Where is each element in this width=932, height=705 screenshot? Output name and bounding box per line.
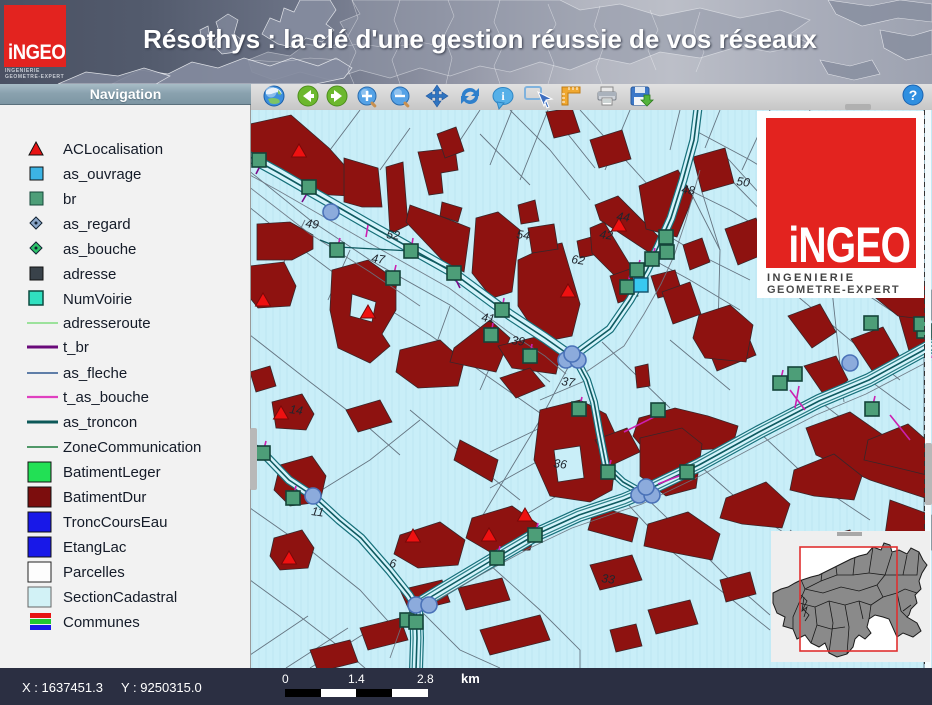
svg-text:NumVoirie: NumVoirie xyxy=(63,291,132,308)
svg-text:48: 48 xyxy=(681,182,696,198)
svg-text:SectionCadastral: SectionCadastral xyxy=(63,589,177,606)
svg-text:41: 41 xyxy=(481,310,496,326)
svg-text:BatimentLeger: BatimentLeger xyxy=(63,464,161,481)
svg-text:39: 39 xyxy=(511,333,526,349)
svg-text:t_as_bouche: t_as_bouche xyxy=(63,389,149,406)
svg-text:52: 52 xyxy=(386,227,401,243)
svg-text:TroncCoursEau: TroncCoursEau xyxy=(63,514,168,531)
svg-text:as_fleche: as_fleche xyxy=(63,365,127,382)
svg-text:44: 44 xyxy=(616,209,631,225)
svg-text:as_bouche: as_bouche xyxy=(63,241,136,258)
svg-text:54: 54 xyxy=(516,227,531,243)
svg-text:33: 33 xyxy=(601,571,616,587)
svg-text:?: ? xyxy=(909,87,918,103)
svg-text:Parcelles: Parcelles xyxy=(63,564,125,581)
svg-text:as_troncon: as_troncon xyxy=(63,414,137,431)
svg-text:42: 42 xyxy=(599,227,614,243)
svg-text:EtangLac: EtangLac xyxy=(63,539,127,556)
svg-text:11: 11 xyxy=(311,504,325,520)
svg-text:14: 14 xyxy=(289,402,304,418)
svg-text:br: br xyxy=(63,191,76,208)
svg-text:adresse: adresse xyxy=(63,266,116,283)
svg-text:Communes: Communes xyxy=(63,614,140,631)
svg-text:ZoneCommunication: ZoneCommunication xyxy=(63,439,201,456)
svg-text:as_ouvrage: as_ouvrage xyxy=(63,166,141,183)
svg-text:ACLocalisation: ACLocalisation xyxy=(63,141,163,158)
svg-text:as_regard: as_regard xyxy=(63,216,131,233)
svg-text:62: 62 xyxy=(571,252,586,268)
svg-text:t_br: t_br xyxy=(63,339,89,356)
svg-text:36: 36 xyxy=(553,456,568,472)
svg-text:BatimentDur: BatimentDur xyxy=(63,489,146,506)
svg-text:adresseroute: adresseroute xyxy=(63,315,151,332)
svg-text:49: 49 xyxy=(305,216,320,232)
svg-text:50: 50 xyxy=(736,174,751,190)
